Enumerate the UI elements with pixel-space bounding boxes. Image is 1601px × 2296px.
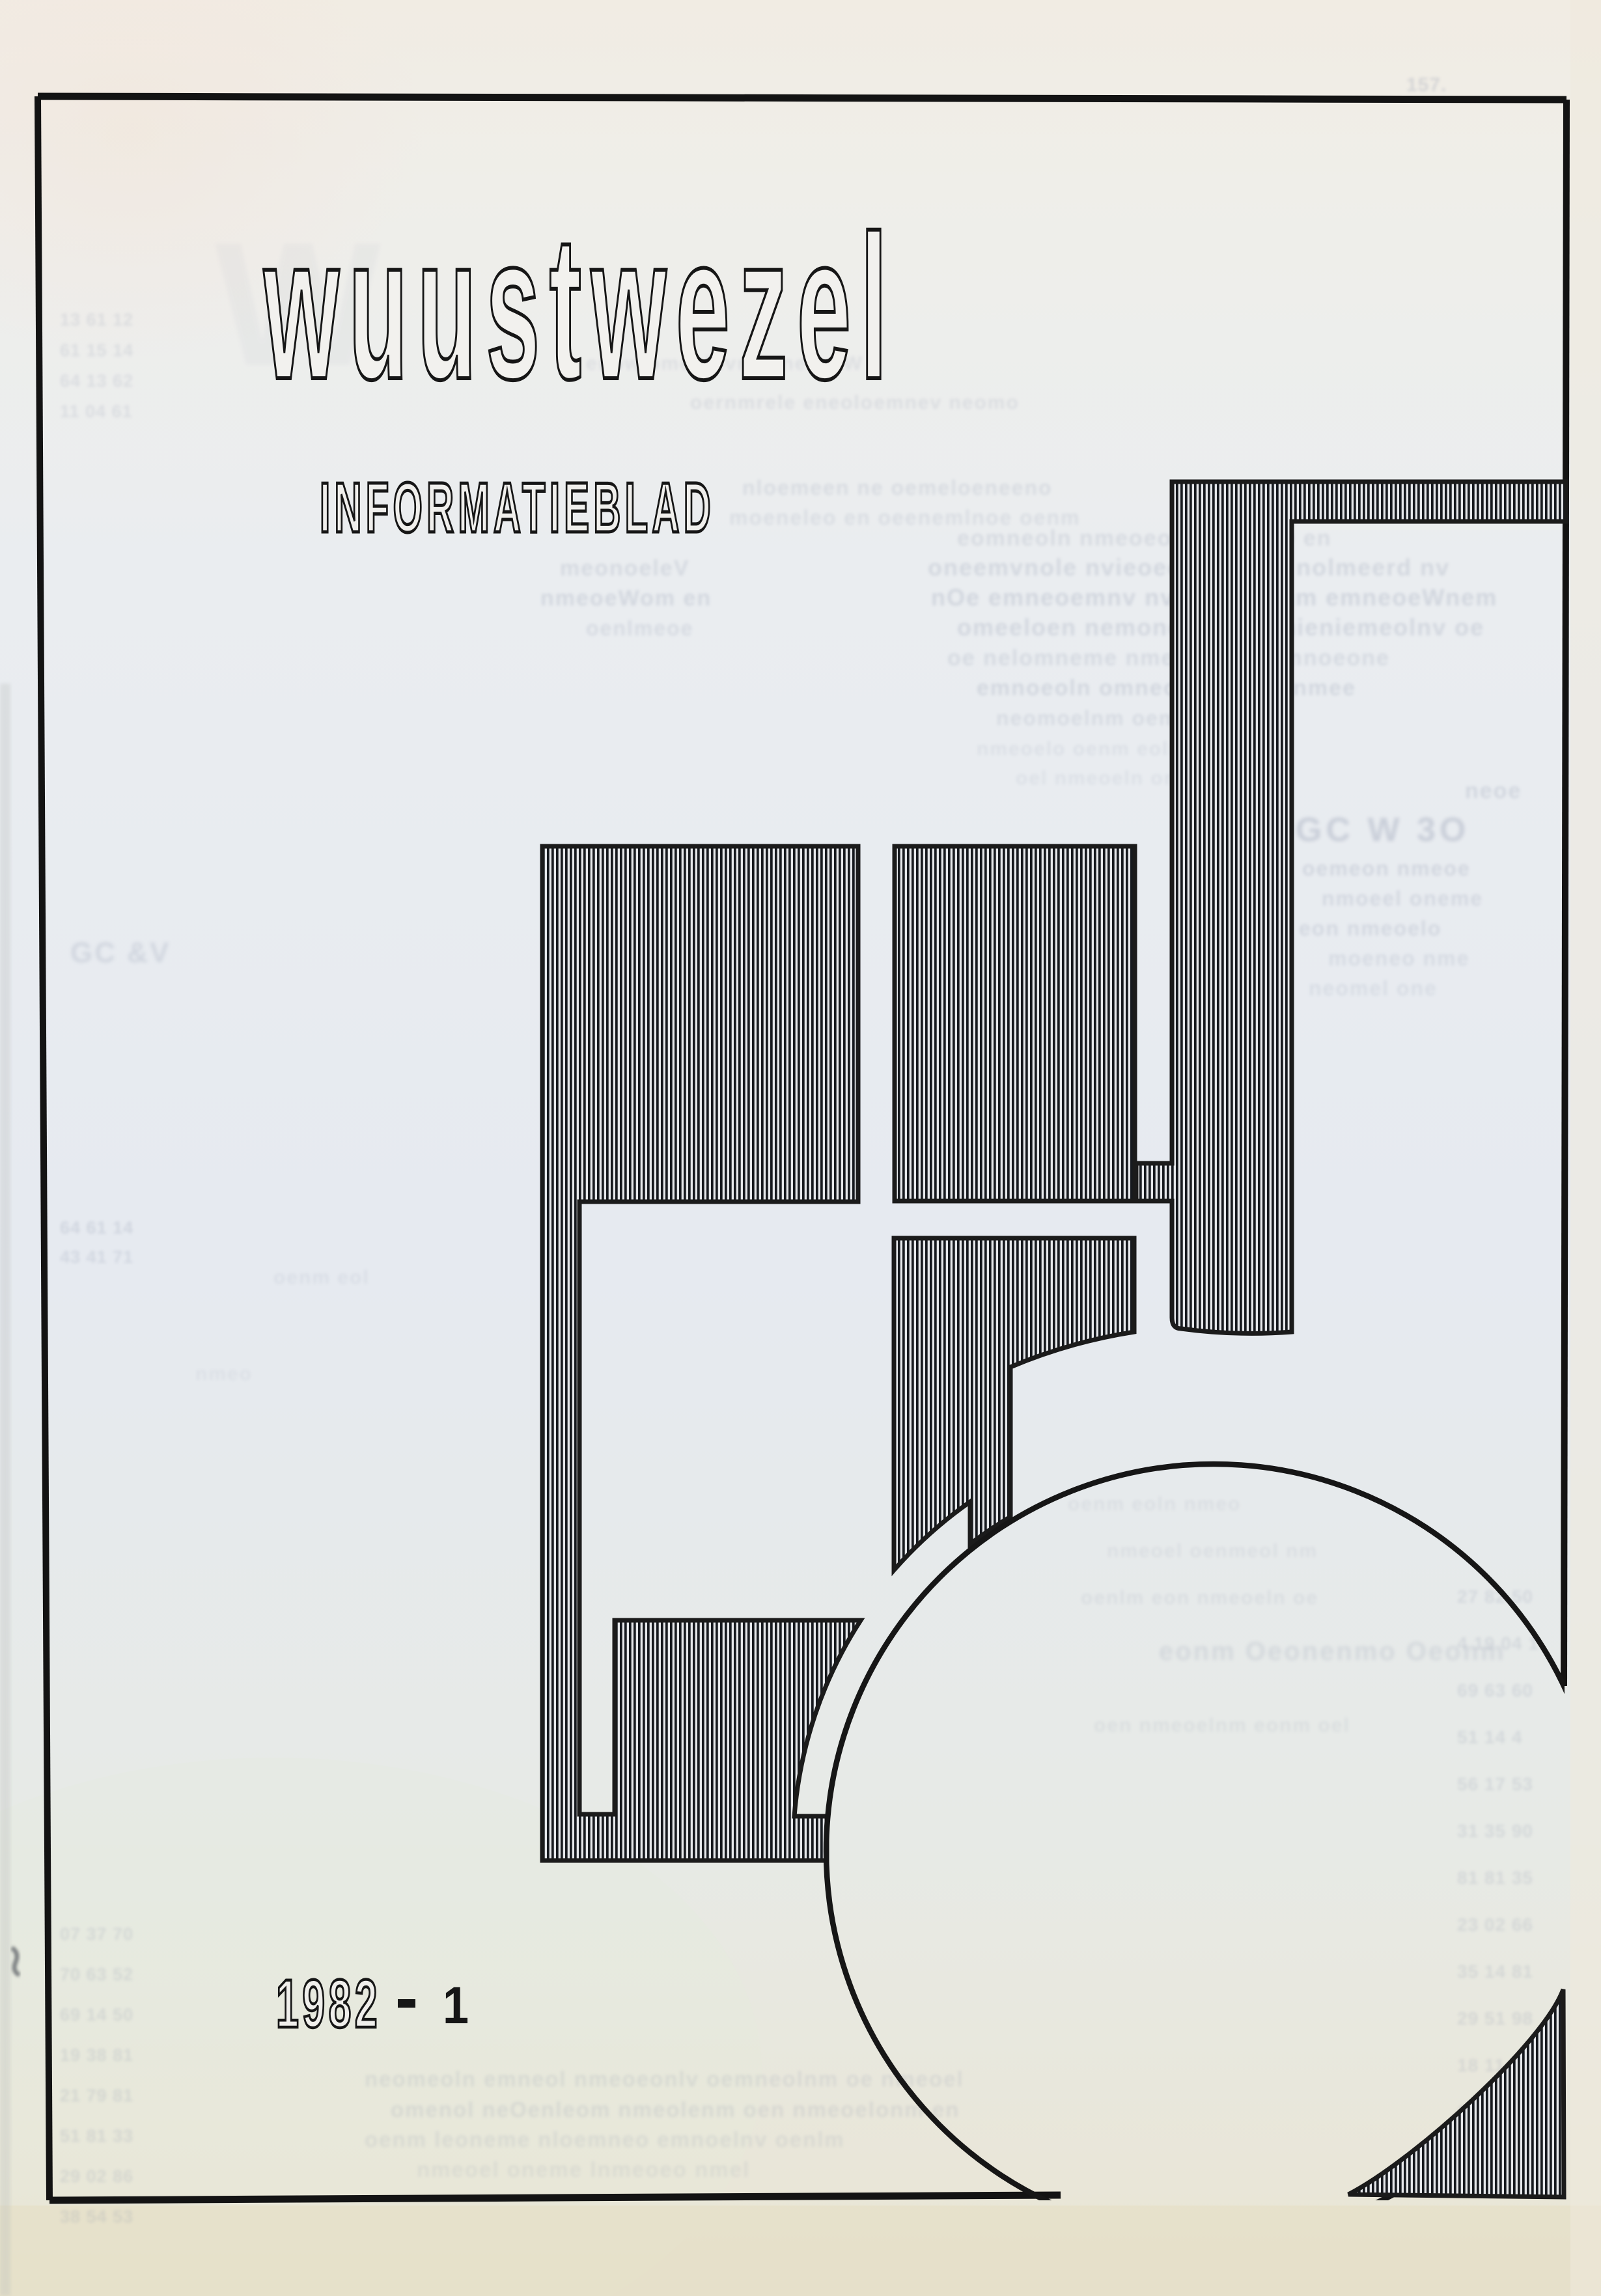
svg-text:157.: 157. xyxy=(1406,74,1447,96)
svg-text:69 63 60: 69 63 60 xyxy=(1457,1680,1533,1700)
svg-text:51 14 4: 51 14 4 xyxy=(1457,1727,1522,1747)
svg-text:oenm eol: oenm eol xyxy=(273,1267,370,1288)
svg-text:INFORMATIEBLAD: INFORMATIEBLAD xyxy=(320,468,715,547)
svg-text:neomel one: neomel one xyxy=(1309,976,1438,1000)
svg-text:38 54 53: 38 54 53 xyxy=(60,2207,133,2226)
svg-text:11 04 61: 11 04 61 xyxy=(60,402,133,421)
svg-text:19 38 81: 19 38 81 xyxy=(60,2045,133,2065)
svg-text:23 02 66: 23 02 66 xyxy=(1457,1915,1533,1935)
svg-text:neoe: neoe xyxy=(1465,779,1522,803)
svg-text:43 41 71: 43 41 71 xyxy=(60,1247,133,1267)
svg-text:69 14 50: 69 14 50 xyxy=(60,2005,133,2025)
svg-text:51 81 33: 51 81 33 xyxy=(60,2126,133,2146)
svg-text:61 15 14: 61 15 14 xyxy=(60,340,133,360)
svg-text:29 02 86: 29 02 86 xyxy=(60,2166,133,2186)
svg-text:nmeoelo oenm eoln: nmeoelo oenm eoln xyxy=(977,738,1182,760)
svg-text:nmoeel oneme: nmoeel oneme xyxy=(1322,887,1483,910)
svg-text:nloemeen ne oemeloeneeno: nloemeen ne oemeloeneeno xyxy=(742,476,1053,499)
svg-text:70 63 52: 70 63 52 xyxy=(60,1965,133,1984)
svg-text:GC &V: GC &V xyxy=(70,937,171,969)
svg-text:oe nelomneme nmeolnmeoe mnoeon: oe nelomneme nmeolnmeoe mnoeone xyxy=(947,646,1390,671)
svg-text:wuustwezel: wuustwezel xyxy=(262,193,897,422)
svg-text:nmeoel oenmeol nm: nmeoel oenmeol nm xyxy=(1107,1540,1318,1562)
svg-text:1982: 1982 xyxy=(276,1966,381,2042)
svg-text:56 17 53: 56 17 53 xyxy=(1457,1774,1533,1794)
svg-text:27 82 50: 27 82 50 xyxy=(1457,1586,1533,1607)
svg-text:emnoeoln omneolem oneolnmee: emnoeoln omneolem oneolnmee xyxy=(977,676,1356,700)
svg-text:29 51 98: 29 51 98 xyxy=(1457,2008,1533,2028)
svg-text:64 13 62: 64 13 62 xyxy=(60,371,133,391)
svg-text:oenlmeoe: oenlmeoe xyxy=(586,616,693,640)
svg-text:eon nmeoelo: eon nmeoelo xyxy=(1299,917,1441,940)
svg-text:neomeoln emneol nmeoeonlv oemn: neomeoln emneol nmeoeonlv oemneolnm oe n… xyxy=(365,2067,964,2091)
svg-text:64 61 14: 64 61 14 xyxy=(60,1218,133,1238)
svg-text:nmeo: nmeo xyxy=(195,1363,253,1385)
svg-text:oel nmeoeln om: oel nmeoeln om xyxy=(1016,768,1182,789)
svg-text:eonm Oeonenmo Oeonm: eonm Oeonenmo Oeonm xyxy=(1159,1637,1506,1666)
svg-text:1: 1 xyxy=(443,1976,469,2035)
svg-text:81 81 35: 81 81 35 xyxy=(1457,1868,1533,1888)
svg-text:oen nmeoelnm eonm oel: oen nmeoelnm eonm oel xyxy=(1094,1715,1350,1736)
svg-text:meonoeleV: meonoeleV xyxy=(560,556,689,581)
svg-text:35 14 81: 35 14 81 xyxy=(1457,1961,1533,1982)
svg-text:nmeoel oneme lnmeoeo nmel: nmeoel oneme lnmeoeo nmel xyxy=(417,2157,750,2181)
svg-text:omenol neOenleom nmeolenm oen: omenol neOenleom nmeolenm oen nmeoelonm … xyxy=(391,2097,960,2122)
svg-text:oenm leoneme nloemneo emnoelnv: oenm leoneme nloemneo emnoelnv oenlm xyxy=(365,2127,845,2151)
svg-text:4 19 04 1: 4 19 04 1 xyxy=(1457,1633,1539,1653)
svg-text:oenlm eon nmeoeln oe: oenlm eon nmeoeln oe xyxy=(1081,1587,1318,1609)
svg-text:31 35 90: 31 35 90 xyxy=(1457,1821,1533,1841)
svg-text:GC W 3O: GC W 3O xyxy=(1296,811,1469,849)
svg-text:13 61 12: 13 61 12 xyxy=(60,310,133,329)
svg-text:nmeoeWom en: nmeoeWom en xyxy=(540,586,712,611)
svg-text:moeneo nme: moeneo nme xyxy=(1328,947,1469,970)
svg-text:21 79 81: 21 79 81 xyxy=(60,2086,133,2105)
svg-text:07 37 70: 07 37 70 xyxy=(60,1924,133,1944)
svg-text:oemeon nmeoe: oemeon nmeoe xyxy=(1302,857,1471,880)
svg-text:oenm eoln nmeo: oenm eoln nmeo xyxy=(1068,1493,1241,1515)
